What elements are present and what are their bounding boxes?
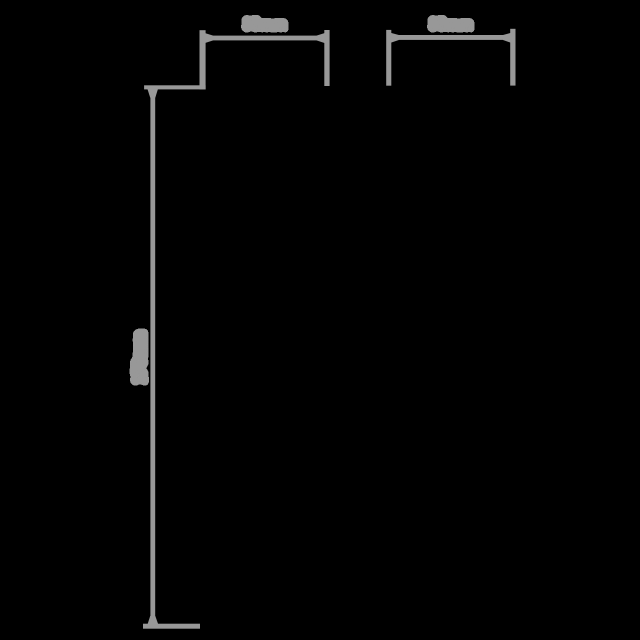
svg-text:170mm: 170mm bbox=[129, 331, 151, 385]
svg-text:85mm: 85mm bbox=[243, 15, 288, 36]
svg-text:85mm: 85mm bbox=[429, 14, 474, 35]
